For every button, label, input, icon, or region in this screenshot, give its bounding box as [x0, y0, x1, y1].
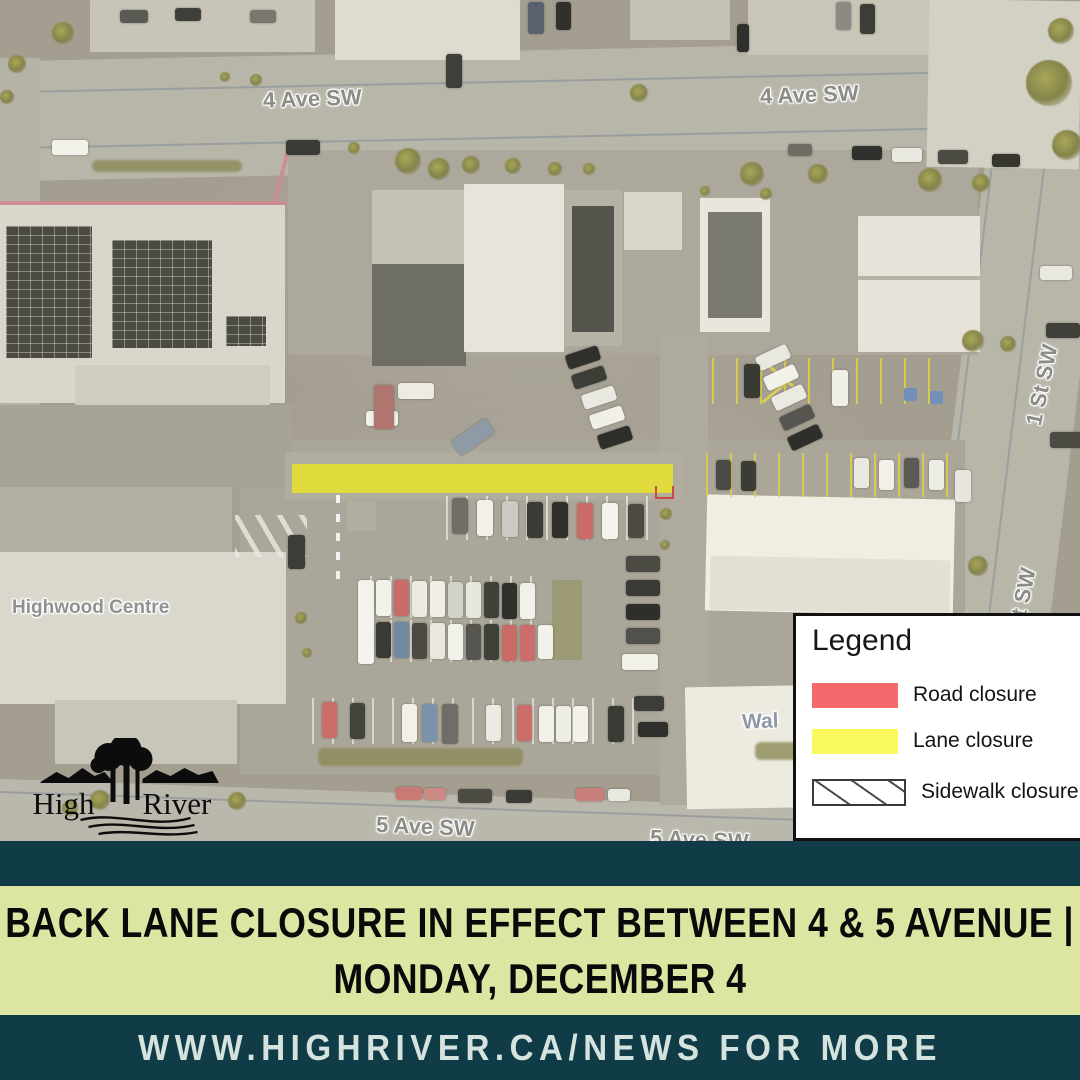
car: [502, 583, 517, 619]
tree: [0, 90, 14, 104]
car: [288, 535, 305, 569]
car: [398, 383, 434, 399]
car: [852, 146, 882, 160]
tree: [548, 162, 562, 176]
car: [638, 722, 668, 737]
legend-row-lane-closure: Lane closure: [812, 728, 1033, 754]
tree: [700, 186, 710, 196]
car: [860, 4, 875, 34]
car: [394, 622, 409, 658]
high-river-logo: High River: [28, 738, 228, 838]
tree: [505, 158, 521, 174]
solar-panel-array: [226, 316, 266, 346]
tree: [1052, 130, 1080, 160]
tree: [760, 188, 772, 200]
car: [466, 582, 481, 618]
pavement: [0, 405, 292, 489]
car: [517, 705, 532, 741]
car: [506, 790, 532, 803]
tree: [1000, 336, 1016, 352]
car: [539, 706, 554, 742]
tree: [1026, 60, 1072, 106]
tree: [808, 164, 828, 184]
tree: [52, 22, 74, 44]
car: [430, 581, 445, 617]
tree: [583, 163, 595, 175]
solar-panel-array: [6, 226, 92, 358]
tree: [968, 556, 988, 576]
car: [556, 2, 571, 30]
car: [552, 502, 568, 538]
car: [854, 458, 869, 488]
car: [448, 624, 463, 660]
car: [446, 54, 462, 88]
headline-line-2: MONDAY, DECEMBER 4: [334, 951, 747, 1006]
place-label-highwood-centre: Highwood Centre: [12, 597, 169, 619]
solar-panel-array: [112, 240, 212, 348]
car: [250, 10, 276, 23]
tree: [630, 84, 648, 102]
car: [520, 583, 535, 619]
tree: [228, 792, 246, 810]
car: [322, 702, 337, 738]
car: [879, 460, 894, 490]
car: [556, 706, 571, 742]
building: [90, 0, 315, 52]
car: [576, 788, 604, 801]
aerial-map: 4 Ave SW 4 Ave SW 1 St SW St SW 5 Ave SW…: [0, 0, 1080, 841]
building: [630, 0, 730, 40]
tree: [918, 168, 942, 192]
car: [904, 458, 919, 488]
building: [335, 0, 520, 60]
tree: [395, 148, 421, 174]
tree: [348, 142, 360, 154]
legend-row-sidewalk-closure: Sidewalk closure: [812, 779, 1079, 805]
car: [577, 503, 593, 539]
car: [376, 622, 391, 658]
shrubs: [318, 748, 523, 766]
tree: [660, 508, 672, 520]
sidewalk-closure-swatch: [812, 779, 906, 806]
car: [350, 703, 365, 739]
accessible-parking-icon: [904, 388, 917, 401]
car: [744, 364, 760, 398]
logo-mountains-right-icon: [143, 768, 219, 783]
logo-river-waves-icon: [81, 817, 198, 834]
car: [52, 140, 88, 155]
street-label-4-ave-sw-left: 4 Ave SW: [263, 84, 362, 113]
headline-line-1: BACK LANE CLOSURE IN EFFECT BETWEEN 4 & …: [6, 895, 1075, 950]
car: [402, 704, 417, 742]
car: [626, 628, 660, 644]
car: [581, 385, 618, 410]
car: [992, 154, 1020, 167]
tree: [250, 74, 262, 86]
car: [527, 502, 543, 538]
car: [374, 385, 394, 429]
car: [412, 623, 427, 659]
car: [741, 461, 756, 491]
car: [452, 498, 468, 534]
car: [602, 503, 618, 539]
street-label-5-ave-sw-left: 5 Ave SW: [375, 812, 475, 841]
road-closure-swatch: [812, 683, 898, 708]
building: [0, 487, 232, 561]
car: [608, 789, 630, 801]
car: [396, 787, 422, 800]
road-closure-poster: 4 Ave SW 4 Ave SW 1 St SW St SW 5 Ave SW…: [0, 0, 1080, 1080]
legend-label-road-closure: Road closure: [913, 683, 1037, 707]
legend-label-lane-closure: Lane closure: [913, 729, 1033, 753]
lane-closure-swatch: [812, 729, 898, 754]
tree: [220, 72, 230, 82]
building: [572, 206, 614, 332]
building: [372, 264, 466, 366]
car: [376, 580, 391, 616]
car: [458, 789, 492, 803]
building: [552, 580, 582, 660]
car: [1040, 266, 1072, 280]
tree: [1048, 18, 1074, 44]
car: [626, 580, 660, 596]
car: [628, 504, 644, 538]
car: [737, 24, 749, 52]
tree: [962, 330, 984, 352]
car: [484, 582, 499, 618]
car: [422, 704, 437, 742]
car: [634, 696, 664, 711]
building: [709, 555, 950, 614]
car: [528, 2, 544, 34]
car: [571, 365, 608, 390]
legend-title: Legend: [812, 624, 912, 658]
tree: [660, 540, 670, 550]
lane-closure-highlight: [292, 464, 673, 493]
car: [788, 144, 812, 156]
tree: [302, 648, 312, 658]
shrubs: [92, 160, 242, 172]
tree: [295, 612, 307, 624]
tree: [740, 162, 764, 186]
car: [286, 140, 320, 155]
tree: [462, 156, 480, 174]
car: [1046, 323, 1080, 338]
car: [394, 580, 409, 616]
place-label-walmart-partial: Wal: [742, 709, 779, 734]
legend-box: Legend Road closure Lane closure Sidewal…: [793, 613, 1080, 841]
building: [75, 365, 270, 405]
car: [412, 581, 427, 617]
car: [502, 501, 518, 537]
crosswalk-dashes: [336, 495, 340, 581]
car: [424, 788, 446, 800]
building: [858, 216, 980, 352]
car: [622, 654, 658, 670]
building: [624, 192, 682, 250]
car: [430, 623, 445, 659]
accessible-parking-icon: [930, 391, 943, 404]
car: [626, 556, 660, 572]
tree: [972, 174, 990, 192]
car: [573, 706, 588, 742]
building: [708, 212, 762, 318]
car: [484, 624, 499, 660]
building: [464, 184, 564, 352]
tree: [428, 158, 450, 180]
legend-label-sidewalk-closure: Sidewalk closure: [921, 780, 1079, 804]
car: [626, 604, 660, 620]
logo-word-high: High: [33, 786, 96, 821]
building: [346, 501, 376, 531]
car: [1050, 432, 1080, 448]
car: [538, 625, 553, 659]
car: [589, 405, 626, 430]
car: [836, 2, 851, 30]
divider-band: [0, 841, 1080, 886]
footer-url-text: WWW.HIGHRIVER.CA/NEWS FOR MORE: [138, 1027, 942, 1069]
lane-closure-end-marker: [655, 486, 674, 499]
car: [442, 704, 458, 744]
pink-path-line: [0, 201, 286, 205]
car: [477, 500, 493, 536]
logo-word-river: River: [143, 786, 213, 821]
car: [832, 370, 848, 406]
street-label-4-ave-sw-right: 4 Ave SW: [760, 80, 859, 109]
building: [0, 552, 286, 704]
car: [892, 148, 922, 162]
car: [938, 150, 968, 164]
car: [175, 8, 201, 21]
pink-path-line: [273, 152, 289, 203]
car: [716, 460, 731, 490]
car: [608, 706, 624, 742]
car: [520, 625, 535, 661]
tree: [8, 55, 26, 73]
car: [448, 582, 463, 618]
headline-banner: BACK LANE CLOSURE IN EFFECT BETWEEN 4 & …: [0, 886, 1080, 1015]
car: [358, 580, 374, 664]
building: [372, 190, 466, 264]
car: [955, 470, 971, 502]
footer-banner: WWW.HIGHRIVER.CA/NEWS FOR MORE: [0, 1015, 1080, 1080]
car: [502, 625, 517, 661]
car: [120, 10, 148, 23]
car: [466, 624, 481, 660]
car: [486, 705, 501, 741]
car: [929, 460, 944, 490]
building: [858, 276, 980, 280]
legend-row-road-closure: Road closure: [812, 682, 1037, 708]
